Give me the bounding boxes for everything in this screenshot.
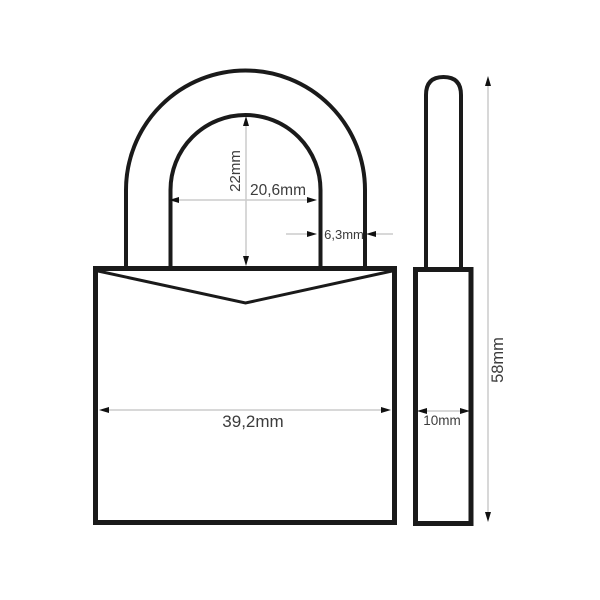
side-view [416, 77, 472, 524]
shackle-side-bar [426, 77, 461, 270]
padlock-body-front [96, 269, 395, 523]
padlock-body-side [416, 270, 472, 524]
dimension-label-6-3mm: 6,3mm [324, 227, 364, 242]
arrowhead-right-icon [307, 231, 317, 237]
dimension-overall-height: 58mm [485, 76, 507, 522]
arrowhead-up-icon [485, 76, 491, 86]
front-view [96, 70, 395, 522]
dimension-shackle-clearance-height: 22mm [227, 116, 249, 266]
arrowhead-right-icon [307, 197, 317, 203]
arrowhead-down-icon [485, 512, 491, 522]
dimension-label-10mm: 10mm [423, 413, 461, 428]
drawing-svg: 22mm 20,6mm 6,3mm 39,2mm [0, 0, 600, 600]
dimension-label-20-6mm: 20,6mm [250, 182, 306, 199]
arrowhead-down-icon [243, 256, 249, 266]
dimension-label-22mm: 22mm [227, 150, 244, 192]
padlock-technical-drawing: 22mm 20,6mm 6,3mm 39,2mm [0, 0, 600, 600]
dimension-label-58mm: 58mm [489, 337, 507, 383]
dimension-shackle-diameter: 6,3mm [286, 227, 393, 242]
dimension-label-39-2mm: 39,2mm [222, 412, 283, 431]
arrowhead-left-icon [366, 231, 376, 237]
arrowhead-up-icon [243, 116, 249, 126]
